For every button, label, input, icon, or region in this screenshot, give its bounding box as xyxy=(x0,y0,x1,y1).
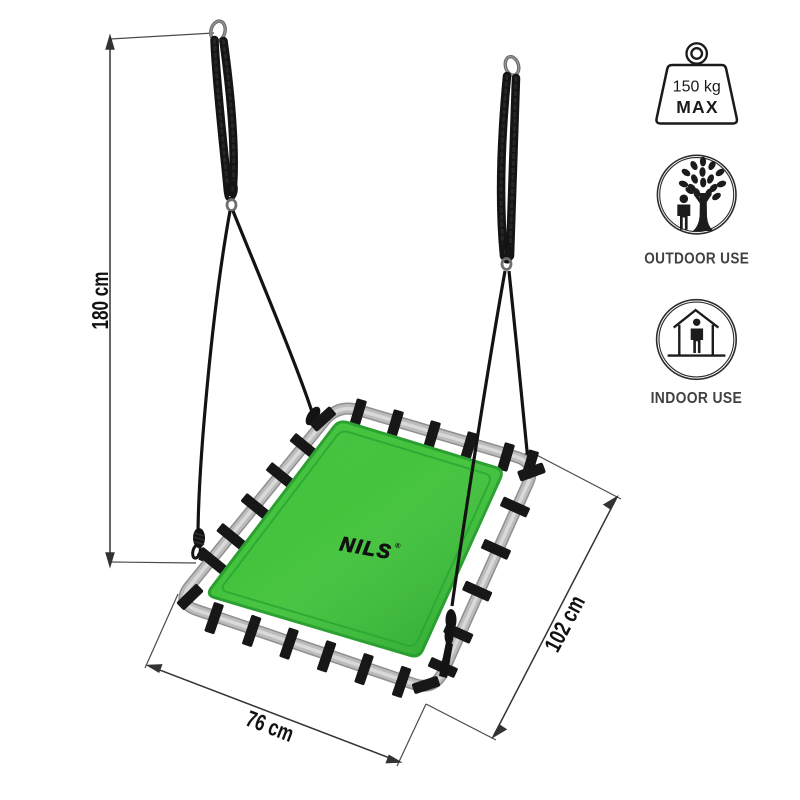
svg-text:INDOOR USE: INDOOR USE xyxy=(651,389,743,407)
svg-text:MAX: MAX xyxy=(676,97,719,117)
svg-text:150 kg: 150 kg xyxy=(673,79,721,96)
svg-text:180 cm: 180 cm xyxy=(87,272,113,330)
svg-text:OUTDOOR USE: OUTDOOR USE xyxy=(644,251,749,268)
